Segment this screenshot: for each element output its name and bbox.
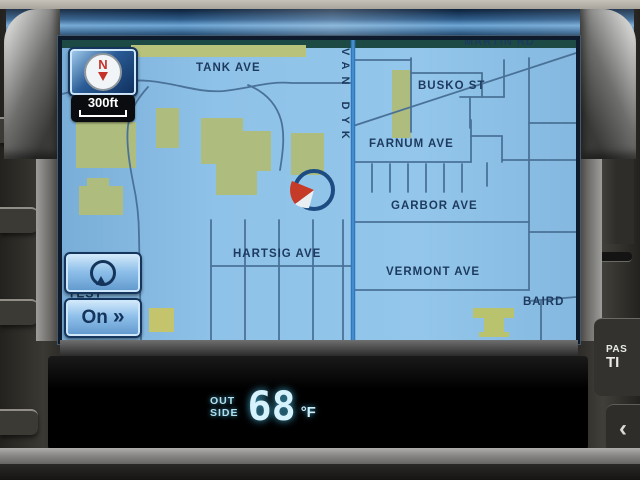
street-label-martin-rd: MARTIN RD (464, 40, 535, 48)
pass-bezel-button[interactable]: PAS TI (594, 318, 640, 396)
chevron-icon: ‹ (619, 415, 627, 443)
compass-north-label: N (98, 58, 107, 71)
temperature-value: 68 (248, 388, 296, 426)
pass-button-label: TI (606, 356, 640, 369)
on-button-label: On (81, 307, 107, 329)
compass-icon: N (84, 53, 122, 91)
street-label-hartsig-ave: HARTSIG AVE (233, 248, 321, 261)
map-scale-button[interactable]: 300ft (71, 95, 135, 122)
street-label-van-dyke: VAN DYK (339, 48, 351, 146)
screen-glass-reflection (6, 9, 634, 39)
map-orientation-button[interactable] (64, 252, 142, 294)
left-bezel-button[interactable] (0, 299, 38, 325)
chrome-trim-left (4, 9, 60, 159)
compass-needle-icon (98, 72, 108, 86)
street-label-farnum-ave: FARNUM AVE (369, 138, 454, 151)
temperature-unit: °F (301, 404, 316, 421)
dash-top-trim (0, 0, 640, 9)
scale-bar-icon (79, 110, 127, 117)
compass-button[interactable]: N (68, 47, 138, 97)
left-bezel-button[interactable] (0, 409, 38, 435)
outside-temperature-display: OUT SIDE 68 °F (210, 388, 316, 426)
map-canvas[interactable]: TANK AVE VAN DYK MARTIN RD BUSKO ST FARN… (62, 40, 576, 340)
car-infotainment-unit: PAS TI ‹ (0, 0, 640, 480)
heading-up-icon (90, 260, 116, 286)
street-label-garbor-ave: GARBOR AVE (391, 200, 478, 213)
street-label-busko-st: BUSKO ST (418, 80, 485, 93)
double-arrow-icon: » (113, 305, 125, 329)
street-label-tank-ave: TANK AVE (196, 62, 261, 75)
bezel-chevron-button[interactable]: ‹ (606, 404, 640, 453)
map-graphics (62, 40, 576, 340)
navigation-screen: TANK AVE VAN DYK MARTIN RD BUSKO ST FARN… (58, 36, 580, 344)
climate-display-panel: OUT SIDE 68 °F (48, 356, 588, 450)
left-bezel-button[interactable] (0, 207, 38, 233)
guidance-on-button[interactable]: On » (64, 298, 142, 338)
outside-label: OUT SIDE (210, 395, 239, 419)
map-scale-value: 300ft (71, 95, 135, 110)
dash-bottom-edge (0, 464, 640, 480)
street-label-vermont-ave: VERMONT AVE (386, 266, 480, 279)
street-label-baird: BAIRD (523, 296, 564, 309)
chrome-trim-right (580, 9, 636, 159)
